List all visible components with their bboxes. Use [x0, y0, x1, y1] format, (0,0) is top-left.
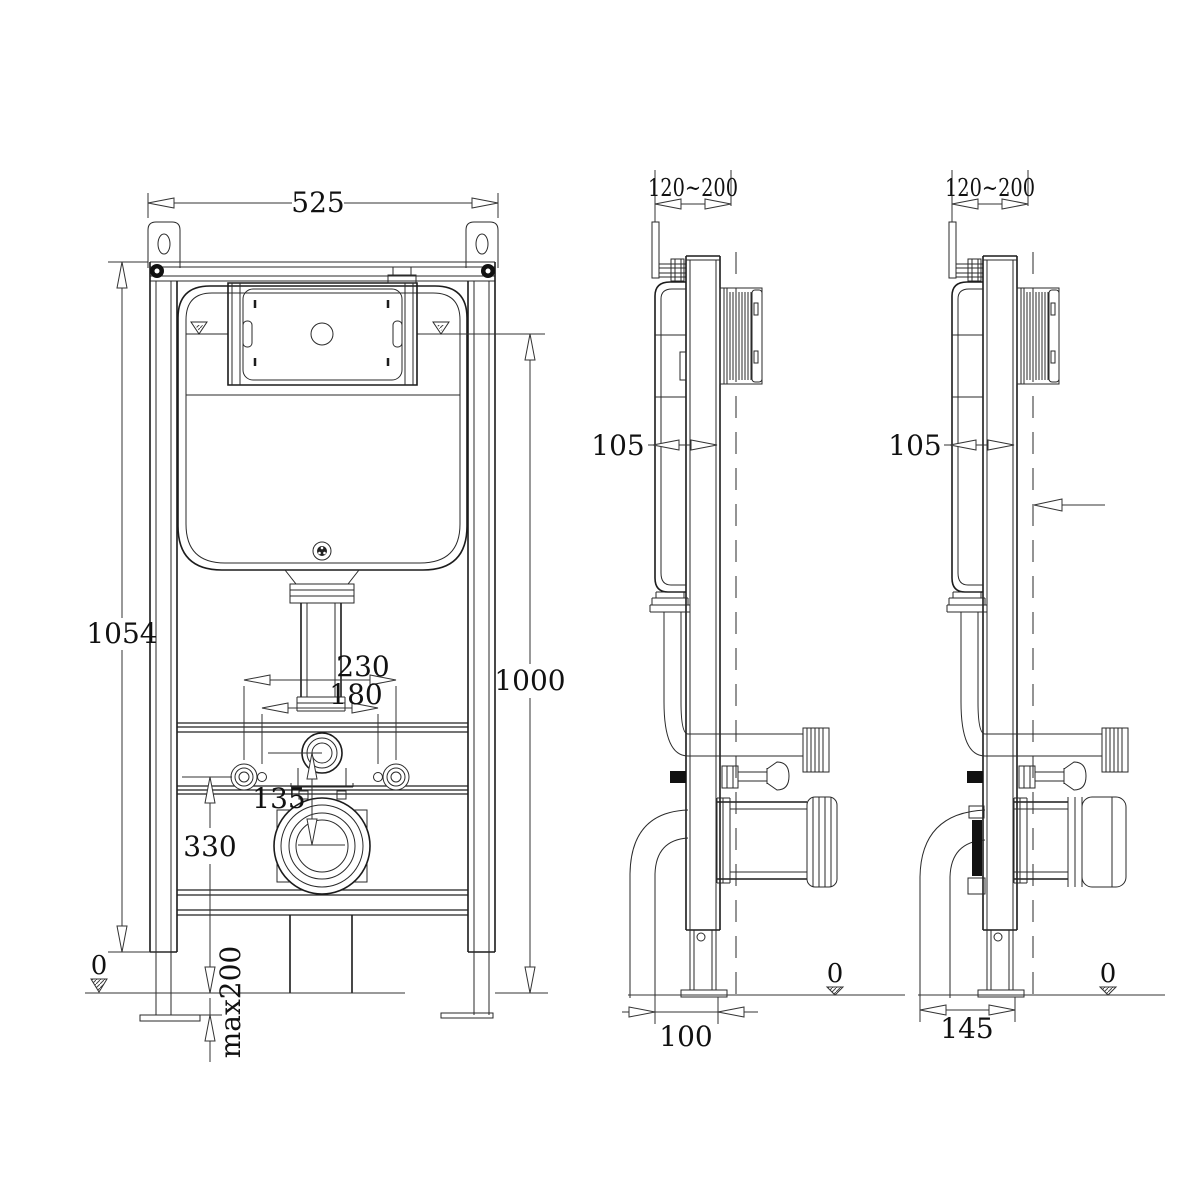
drain-pipe: [290, 915, 352, 993]
tab-slot-right: [476, 234, 488, 254]
installation-drawing: 525 1054 1000 230 180: [0, 0, 1200, 1200]
sv1-latch: [680, 352, 686, 380]
datum-sv1: 0: [827, 959, 844, 995]
datum-sv2: 0: [1100, 959, 1117, 995]
sv2-wall-bracket: [949, 222, 956, 278]
sv1-frame-inner: [686, 260, 720, 930]
sv1-waste-outlet: [717, 797, 837, 887]
foot-plate-left: [140, 1015, 200, 1021]
sv1-flush-shaft-bellows: [720, 288, 762, 384]
sv2-frame-inner: [983, 260, 1017, 930]
sv2-leg: [987, 930, 1013, 990]
dim-frame-height: 1054: [86, 262, 170, 952]
sv1-foot-plate: [681, 990, 727, 997]
access-panel-cover: [243, 289, 402, 380]
sv2-waste-outlet: [1014, 797, 1126, 887]
top-rail: [150, 262, 495, 281]
sv1-leg-hole: [697, 933, 705, 941]
sv1-rod-nut-lines: [675, 259, 681, 281]
dim-outlet-offset-label: 135: [252, 782, 305, 815]
datum-sv2-label: 0: [1100, 959, 1117, 989]
level-mark-left: [191, 322, 207, 334]
sv2-drain-elbow: [920, 806, 985, 998]
sv1-flush-pipe: [664, 612, 681, 702]
access-panel-bands: [232, 283, 413, 385]
sv2-cistern-profile: [952, 282, 983, 592]
dim-sv2-frame-depth: 105: [888, 429, 1014, 462]
sv2-flush-flange: [947, 592, 987, 612]
sv2-elbow: [961, 702, 985, 756]
sv1-drain-elbow: [630, 810, 688, 998]
sv1-fixing-bolt: [722, 762, 789, 790]
corner-bolt-left-center: [155, 269, 160, 274]
sv2-leg-hole: [994, 933, 1002, 941]
sv1-rod-nut: [671, 259, 684, 281]
sv2-bracket-rod: [956, 264, 983, 277]
sv1-cistern-inner: [655, 289, 686, 585]
sv2-cistern-inner: [952, 289, 983, 585]
filler-tab-2: [393, 267, 411, 275]
side-view-right: [920, 222, 1128, 998]
access-panel-frame: [228, 283, 417, 385]
dim-sv2-flush-plate-range-label: 120~200: [945, 174, 1035, 202]
panel-latch-left: [243, 321, 252, 347]
datum-front: 0: [91, 951, 108, 992]
sv2-fixing-bolt: [1019, 762, 1086, 790]
dim-sv1-base-depth: 100: [622, 997, 758, 1053]
wall-line-pointer: [1034, 499, 1105, 511]
dim-fixing-height-label: 330: [183, 830, 236, 863]
sv1-frame: [686, 256, 720, 930]
dim-fixing-spacing-inner-label: 180: [329, 678, 382, 711]
dim-mounting-height: 1000: [419, 334, 566, 993]
sv1-clamp-block: [670, 771, 686, 783]
dim-mounting-height-label: 1000: [494, 664, 565, 697]
flush-valve-flange: [285, 570, 359, 603]
cistern-outline: [178, 286, 467, 570]
dim-sv1-frame-depth-label: 105: [591, 429, 644, 462]
sv2-foot-plate: [978, 990, 1024, 997]
level-mark-right: [433, 322, 449, 334]
wall-tab-right: [466, 222, 498, 268]
dim-foot-adjustment: max200: [205, 946, 247, 1062]
sv2-flush-pipe: [961, 612, 978, 702]
sv1-flush-flange: [650, 592, 690, 612]
sv1-cistern-profile: [655, 282, 686, 592]
sv2-outlet-pipe: [985, 734, 1102, 756]
dim-sv1-base-depth-label: 100: [659, 1020, 712, 1053]
foot-plate-right: [441, 1013, 493, 1018]
dim-sv2-base-depth: 145: [920, 997, 1015, 1045]
dim-overall-width: 525: [148, 186, 498, 219]
dim-foot-adjustment-label: max200: [214, 946, 247, 1058]
sv2-pipe-threads: [1102, 728, 1128, 772]
sv1-outlet-pipe: [688, 734, 803, 756]
sv2-flush-shaft-bellows: [1017, 288, 1059, 384]
sv1-bracket-rod: [659, 264, 686, 277]
side-view-left: [630, 222, 837, 998]
dimensions: 525 1054 1000 230 180: [85, 170, 1165, 1062]
waste-nub-right: [337, 791, 346, 799]
cistern-divider: [186, 334, 460, 395]
dim-sv1-flush-plate-range-label: 120~200: [648, 174, 738, 202]
datum-front-label: 0: [91, 951, 108, 981]
sv2-frame: [983, 256, 1017, 930]
sv2-rod-nut-lines: [972, 259, 978, 281]
sv2-clamp-block: [967, 771, 983, 783]
brand-emblem: [313, 542, 331, 560]
panel-corner-ticks: [255, 300, 388, 366]
front-view: [140, 222, 498, 1021]
dim-sv1-frame-depth: 105: [591, 429, 717, 462]
dim-sv2-frame-depth-label: 105: [888, 429, 941, 462]
panel-center-hole: [311, 323, 333, 345]
wall-tab-left: [148, 222, 180, 268]
datum-sv1-label: 0: [827, 959, 844, 989]
dim-sv2-base-depth-label: 145: [940, 1012, 993, 1045]
corner-bolt-right-center: [486, 269, 491, 274]
dim-sv2-flush-plate-range: 120~200: [945, 170, 1035, 222]
sv1-leg: [690, 930, 716, 990]
sv1-pipe-threads: [803, 728, 829, 772]
tab-slot-left: [158, 234, 170, 254]
dim-sv1-flush-plate-range: 120~200: [648, 170, 738, 222]
panel-latch-right: [393, 321, 402, 347]
sv1-wall-bracket: [652, 222, 659, 278]
adjustable-legs: [156, 952, 489, 1015]
dim-overall-width-label: 525: [291, 186, 344, 219]
sv2-rod-nut: [968, 259, 981, 281]
drawing-canvas: 525 1054 1000 230 180: [0, 0, 1200, 1200]
sv1-elbow: [664, 702, 688, 756]
dim-frame-height-label: 1054: [86, 617, 157, 650]
